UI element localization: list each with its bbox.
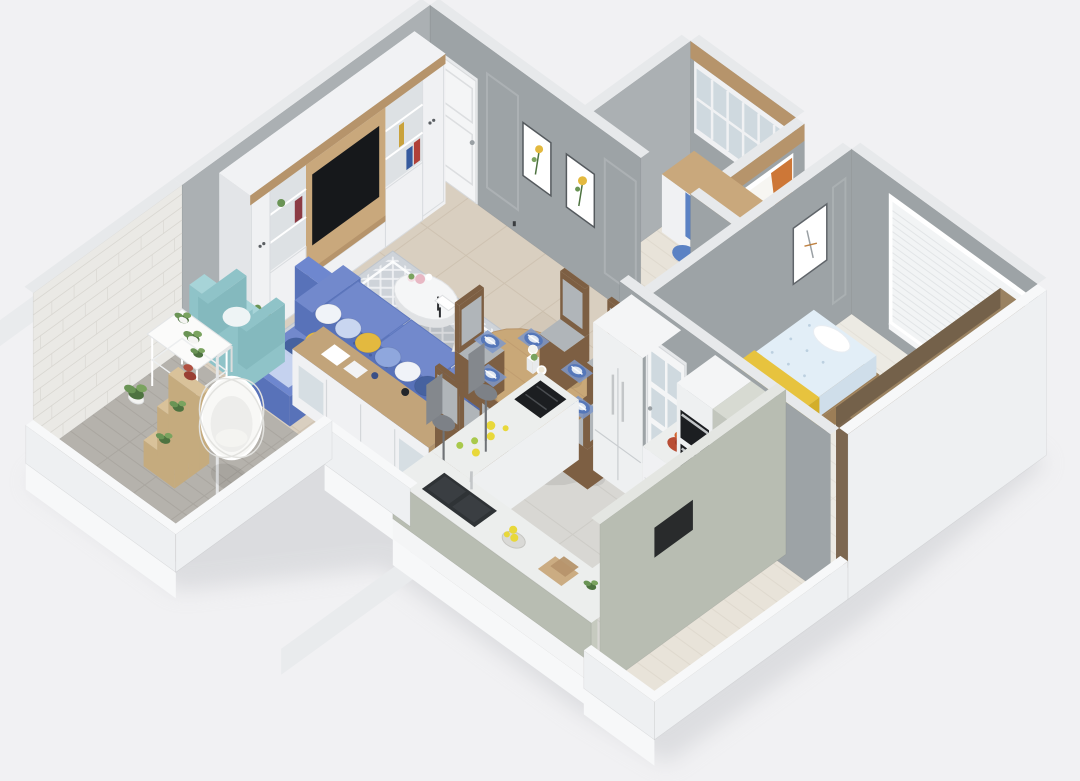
- isometric-apartment-svg: [0, 0, 1080, 781]
- floorplan-render: [0, 0, 1080, 781]
